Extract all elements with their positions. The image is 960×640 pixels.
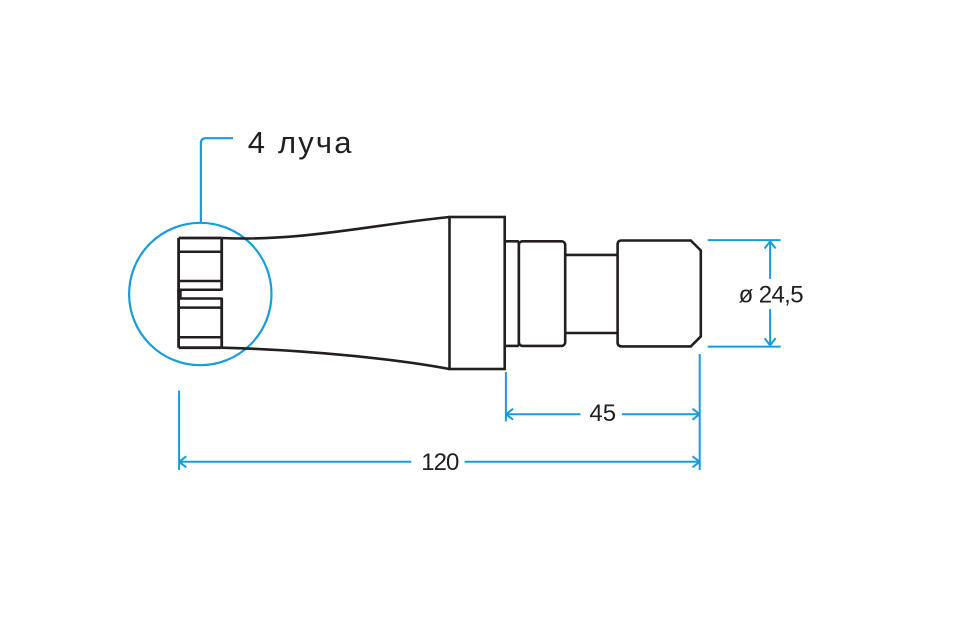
svg-text:120: 120 (421, 449, 459, 476)
svg-text:45: 45 (589, 400, 616, 427)
svg-text:4 луча: 4 луча (248, 125, 354, 160)
svg-text:ø 24,5: ø 24,5 (739, 281, 804, 308)
